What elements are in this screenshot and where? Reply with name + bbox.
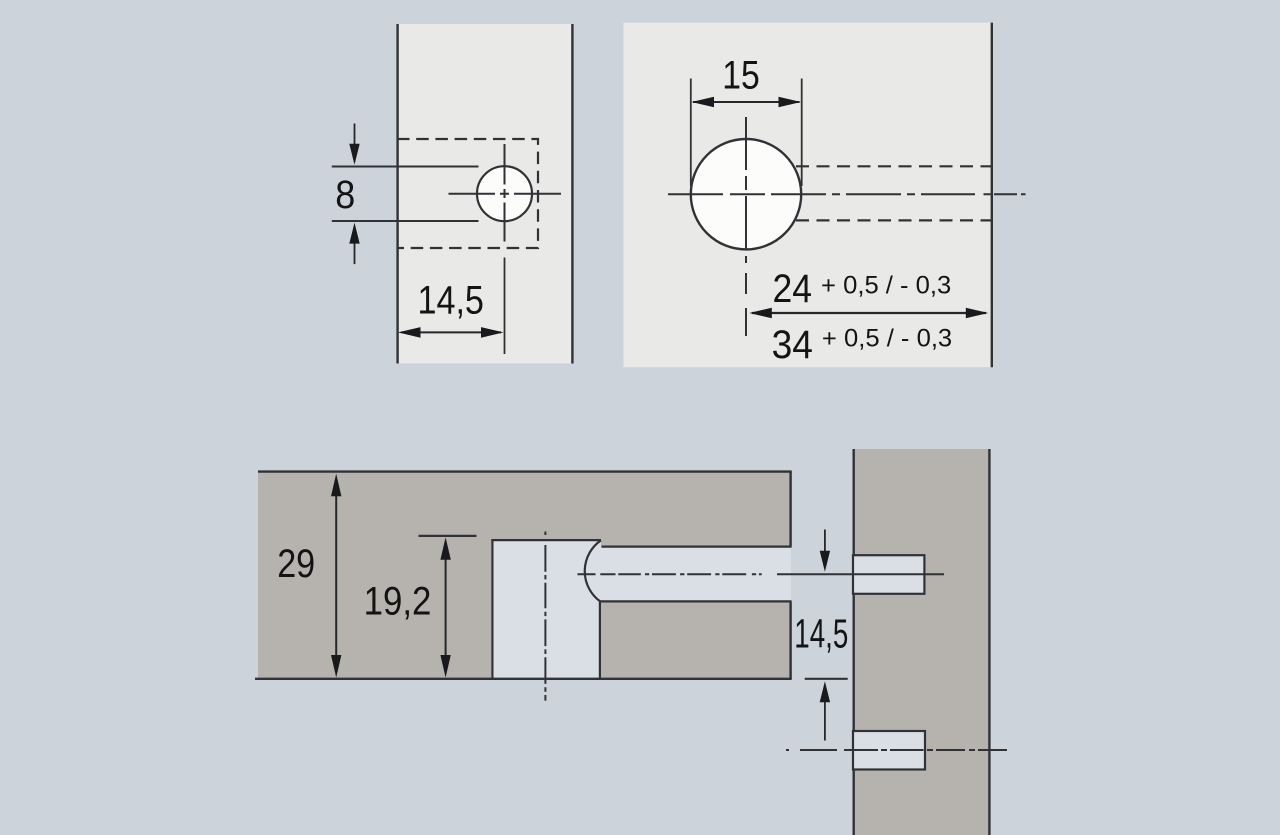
svg-text:15: 15 (722, 54, 760, 98)
svg-text:34: 34 (772, 323, 813, 367)
svg-text:14,5: 14,5 (794, 610, 848, 656)
svg-text:8: 8 (335, 173, 355, 217)
svg-text:19,2: 19,2 (364, 579, 432, 623)
svg-text:24: 24 (773, 267, 813, 311)
svg-text:+ 0,5 / - 0,3: + 0,5 / - 0,3 (821, 272, 951, 300)
svg-text:14,5: 14,5 (417, 278, 484, 322)
svg-text:+ 0,5 / - 0,3: + 0,5 / - 0,3 (822, 325, 952, 353)
svg-text:29: 29 (277, 542, 315, 586)
